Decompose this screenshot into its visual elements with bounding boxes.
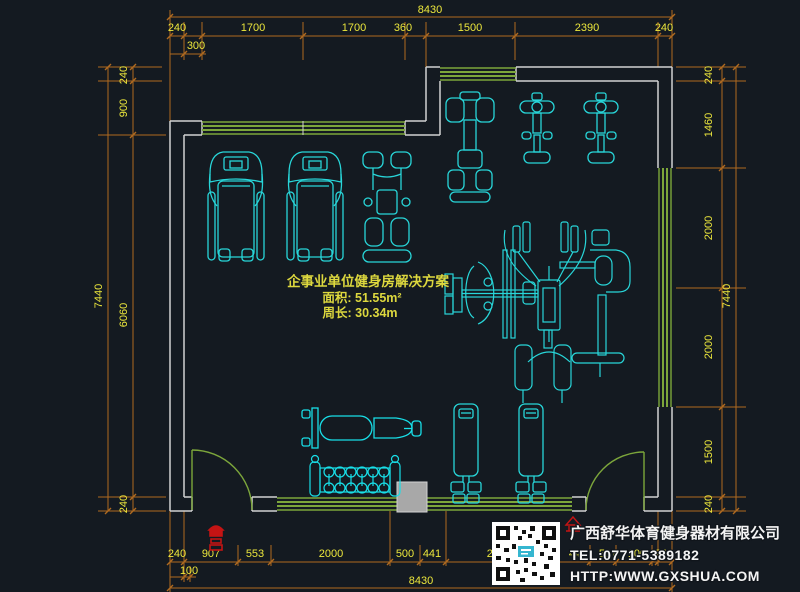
door-left — [192, 450, 252, 510]
dim-left: 900 — [118, 99, 130, 117]
dim-right: 2000 — [703, 335, 715, 359]
dim-right: 1500 — [703, 440, 715, 464]
massage-bench-icon — [302, 408, 421, 448]
plan-title: 企事业单位健身房解决方案 — [286, 273, 449, 289]
dim-bottom: 553 — [246, 548, 264, 560]
qr-logo — [518, 546, 534, 557]
treadmill-icon — [287, 152, 343, 261]
company-name: 广西舒华体育健身器材有限公司 — [570, 524, 780, 542]
dim-top: 240 — [655, 22, 673, 34]
column — [397, 482, 427, 512]
dim-right: 2000 — [703, 216, 715, 240]
dim-right-overall: 7440 — [721, 284, 733, 308]
plan-label: 企事业单位健身房解决方案 面积: 51.55m² 周长: 30.34m — [286, 273, 449, 320]
vertical-strength-machine-icon — [516, 404, 546, 503]
dumbbell-rack-icon — [310, 456, 400, 497]
dim-bottom: 240 — [168, 548, 186, 560]
multi-press-machine-icon — [446, 92, 494, 202]
cad-drawing-area[interactable]: 8430 240 1700 1700 360 1500 2390 240 300… — [0, 0, 800, 592]
dim-bottom-overall: 8430 — [409, 575, 433, 587]
dim-bottom-sub: 100 — [180, 565, 198, 577]
dim-bottom: 500 — [396, 548, 414, 560]
window-top-left — [202, 121, 405, 135]
dim-top: 1500 — [458, 22, 482, 34]
dim-top: 360 — [394, 22, 412, 34]
dim-top: 240 — [168, 22, 186, 34]
door-right — [586, 452, 644, 510]
dim-left: 6060 — [118, 303, 130, 327]
window-right — [659, 168, 671, 407]
dim-right: 1460 — [703, 113, 715, 137]
four-station-jungle-gym-icon — [445, 222, 630, 403]
treadmill-icon — [208, 152, 264, 261]
dim-right: 240 — [703, 495, 715, 513]
dim-right: 240 — [703, 66, 715, 84]
company-website: HTTP:WWW.GXSHUA.COM — [570, 568, 760, 584]
dim-left: 240 — [118, 495, 130, 513]
elliptical-bike-icon — [520, 93, 554, 163]
window-top-right — [440, 68, 516, 80]
plan-area: 面积: 51.55m² — [322, 290, 401, 305]
seated-leg-machine-icon — [363, 152, 411, 262]
dim-top-overall: 8430 — [418, 4, 442, 16]
vertical-strength-machine-icon — [451, 404, 481, 503]
company-tel: TEL:0771-5389182 — [570, 547, 699, 563]
dim-top: 1700 — [241, 22, 265, 34]
title-block: 广西舒华体育健身器材有限公司 TEL:0771-5389182 HTTP:WWW… — [570, 524, 780, 584]
dim-top: 2390 — [575, 22, 599, 34]
dim-left: 240 — [118, 66, 130, 84]
elliptical-bike-icon — [584, 93, 618, 163]
qr-code-icon — [492, 522, 560, 585]
dim-left-overall: 7440 — [93, 284, 105, 308]
fire-hydrant-icon — [209, 526, 223, 550]
dim-top-sub: 300 — [187, 40, 205, 52]
dumbbells — [324, 467, 389, 493]
dim-top: 1700 — [342, 22, 366, 34]
floor-plan: 8430 240 1700 1700 360 1500 2390 240 300… — [0, 0, 800, 592]
plan-perimeter: 周长: 30.34m — [322, 305, 397, 320]
dim-bottom: 441 — [423, 548, 441, 560]
dim-bottom: 2000 — [319, 548, 343, 560]
